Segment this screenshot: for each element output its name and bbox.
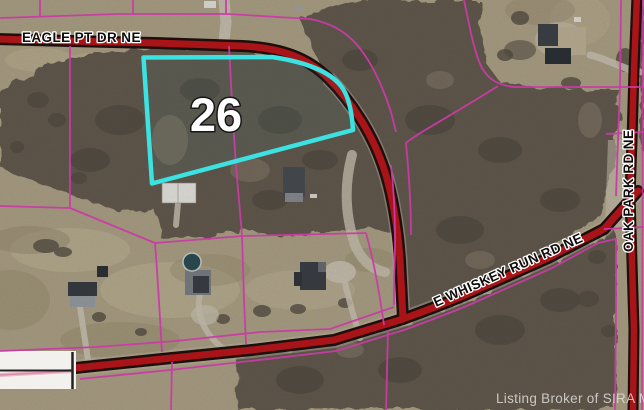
parcel-26-label: 26 <box>190 88 242 141</box>
road-label-eagle-pt-dr: EAGLE PT DR NE <box>22 30 141 45</box>
aerial-imagery <box>0 0 644 410</box>
map-canvas: EAGLE PT DR NE E WHISKEY RUN RD NE OAK P… <box>0 0 644 410</box>
mls-watermark: Listing Broker of SIRA MLS© <box>496 391 644 406</box>
grain-overlay <box>0 0 644 410</box>
road-label-oak-park: OAK PARK RD NE <box>621 130 636 252</box>
map-edge-box <box>0 351 76 389</box>
